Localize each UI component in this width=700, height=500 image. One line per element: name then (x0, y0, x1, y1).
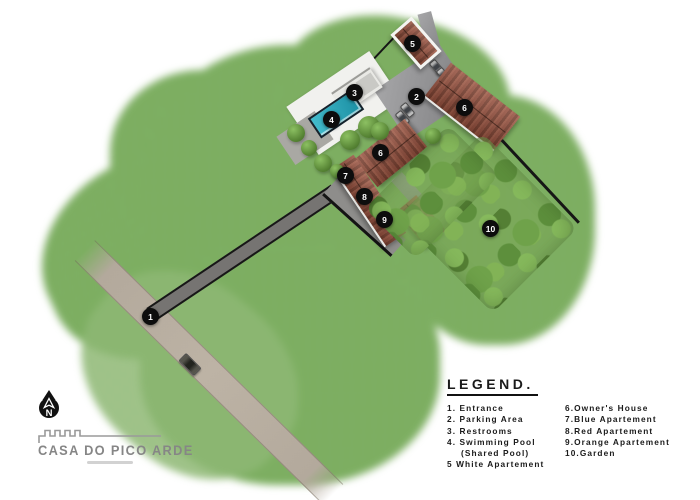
bush (301, 140, 317, 156)
map-marker-red-apartement: 8 (356, 188, 373, 205)
legend-item: 6.Owner's House (565, 403, 670, 414)
legend-item: 8.Red Apartement (565, 426, 670, 437)
legend-column-2: 6.Owner's House 7.Blue Apartement 8.Red … (565, 403, 670, 471)
brand-name: CASA DO PICO ARDE (38, 443, 194, 458)
legend: LEGEND. 1. Entrance 2. Parking Area 3. R… (447, 376, 670, 471)
map-marker-entrance: 1 (142, 308, 159, 325)
map-marker-pool: 4 (323, 111, 340, 128)
map-marker-parking: 2 (408, 88, 425, 105)
map-marker-owners-house-b: 6 (372, 144, 389, 161)
site-map-page: 1 2 3 4 5 6 6 7 8 9 10 LEGEND. 1. Entran… (0, 0, 700, 500)
legend-title: LEGEND. (447, 376, 538, 396)
legend-item: 2. Parking Area (447, 414, 565, 425)
map-marker-white-apartement: 5 (404, 35, 421, 52)
bush (340, 130, 360, 150)
legend-item: 5 White Apartement (447, 459, 565, 470)
legend-column-1: 1. Entrance 2. Parking Area 3. Restrooms… (447, 403, 565, 471)
legend-item: 7.Blue Apartement (565, 414, 670, 425)
legend-item: 1. Entrance (447, 403, 565, 414)
compass-letter: N (46, 408, 53, 419)
map-marker-orange-apartement: 9 (376, 211, 393, 228)
legend-item: (Shared Pool) (447, 448, 565, 459)
bush (371, 122, 389, 140)
brand-battlement-icon (38, 428, 162, 444)
map-marker-restrooms: 3 (346, 84, 363, 101)
legend-item: 10.Garden (565, 448, 670, 459)
brand-tagline (87, 461, 133, 464)
legend-item: 4. Swimming Pool (447, 437, 565, 448)
map-marker-garden: 10 (482, 220, 499, 237)
map-marker-blue-apartement: 7 (337, 167, 354, 184)
bush (425, 128, 441, 144)
bush (287, 124, 305, 142)
legend-item: 3. Restrooms (447, 426, 565, 437)
map-marker-owners-house-a: 6 (456, 99, 473, 116)
legend-item: 9.Orange Apartement (565, 437, 670, 448)
compass-north-icon: N (36, 389, 62, 421)
